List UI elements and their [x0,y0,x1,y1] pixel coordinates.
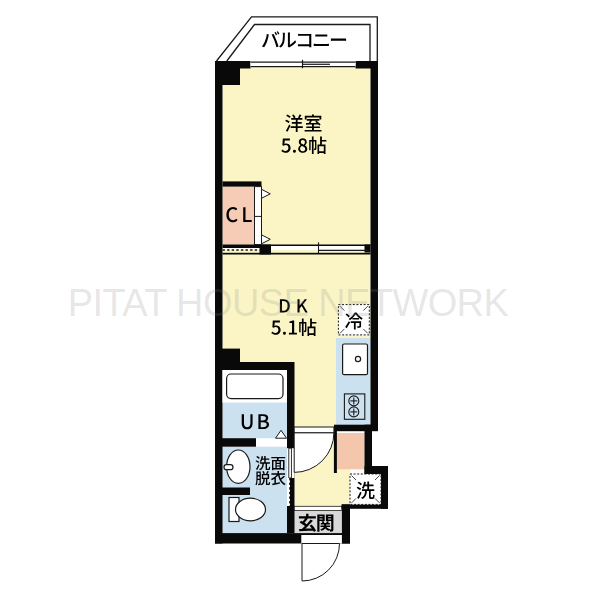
svg-text:PITAT HOUSE NETWORK: PITAT HOUSE NETWORK [68,282,509,324]
